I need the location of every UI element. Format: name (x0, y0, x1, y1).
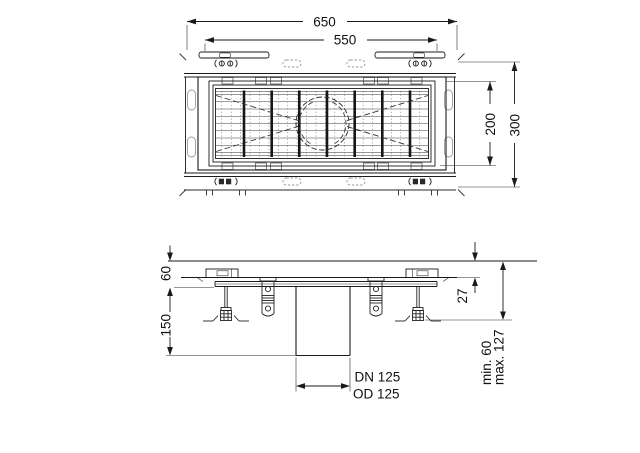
technical-drawing-page: 650 550 (0, 0, 640, 453)
drain-channel-drawing: 650 550 (0, 0, 640, 453)
dim-300-label: 300 (508, 114, 523, 137)
levelling-foot-right (395, 287, 441, 321)
dim-channel-width: 200 (440, 82, 498, 166)
arrowhead-up (512, 62, 518, 71)
dim-150-label: 150 (159, 314, 174, 337)
plan-view: 650 550 (180, 15, 523, 197)
dim-27-label: 27 (455, 288, 470, 303)
outlet-pipe (296, 287, 350, 356)
channel-body-section (197, 278, 449, 287)
arrowhead-down (512, 178, 518, 187)
dim-recess: 27 (455, 242, 478, 304)
fastener-mark-bottom-left (215, 178, 237, 185)
arrowhead-right (428, 37, 437, 43)
arrowhead-up (167, 288, 173, 297)
arrowhead-down (167, 253, 173, 262)
height-bracket-left (260, 278, 276, 317)
arrowhead-up (500, 262, 506, 271)
arrowhead-left (296, 383, 305, 389)
arrowhead-right (448, 19, 457, 25)
slot-oval-top-right (347, 60, 365, 67)
fastener-mark-bottom-right (409, 178, 431, 185)
edge-profile-right (406, 269, 438, 278)
levelling-foot-left (203, 287, 249, 321)
section-view: 60 150 27 min. 60 max. 127 DN 1 (159, 242, 538, 402)
arrowhead-down (487, 157, 493, 166)
floor-break-ticks (180, 54, 465, 197)
slot-oval-bottom-left (283, 178, 301, 185)
arrowhead-left (187, 19, 196, 25)
dim-60-label: 60 (159, 266, 174, 281)
grating (216, 89, 429, 159)
slot-oval-bottom-right (347, 178, 365, 185)
dim-200-label: 200 (483, 113, 498, 136)
slot-oval-top-left (283, 60, 301, 67)
arrowhead-right (341, 383, 350, 389)
dim-max-label: max. 127 (492, 329, 507, 385)
outlet-dn-label: DN 125 (355, 370, 401, 385)
arrowhead-down (500, 312, 506, 321)
dim-550-label: 550 (334, 33, 357, 48)
mounting-tabs-bottom (184, 190, 456, 196)
dim-grate-width: 550 (205, 33, 437, 52)
arrowhead-down (472, 253, 478, 262)
dim-install-depth: min. 60 max. 127 (425, 262, 512, 386)
height-bracket-right (368, 278, 384, 317)
fastener-mark-top-left (215, 60, 237, 67)
arrowhead-up (472, 278, 478, 287)
fastener-mark-top-right (409, 60, 431, 67)
arrowhead-down (167, 347, 173, 356)
dim-outlet: DN 125 OD 125 (296, 358, 400, 402)
arrowhead-up (487, 82, 493, 91)
edge-profile-left (206, 269, 238, 278)
dim-650-label: 650 (313, 15, 336, 30)
mounting-tab-top-left (199, 52, 269, 58)
grate-grid (216, 91, 429, 158)
outlet-od-label: OD 125 (353, 387, 400, 402)
mounting-tab-top-right (375, 52, 445, 58)
arrowhead-left (205, 37, 214, 43)
dim-overall-width: 650 (187, 15, 457, 51)
